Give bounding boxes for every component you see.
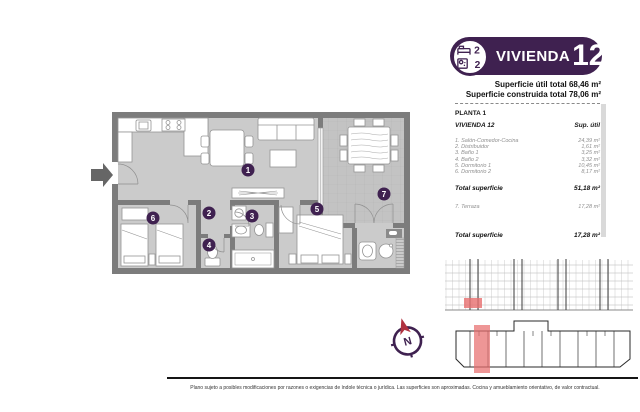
svg-text:1: 1: [246, 166, 251, 175]
unit-badge: 2 2 VIVIENDA 12: [450, 37, 602, 75]
building-elevation-locator: [443, 256, 637, 318]
room-marker-4: 4: [203, 239, 216, 252]
surface-totals: Superficie útil total 68,46 m² Superfici…: [400, 80, 601, 100]
svg-text:2: 2: [207, 209, 212, 218]
room-marker-5: 5: [311, 203, 324, 216]
rooms-count-icon: 2 2: [451, 38, 489, 76]
room-marker-7: 7: [378, 188, 391, 201]
svg-text:6: 6: [151, 214, 156, 223]
terrace-table: [340, 119, 398, 172]
table-unit-label: VIVIENDA 12: [455, 122, 495, 129]
unit-highlight-elevation: [464, 298, 482, 308]
areas-table: PLANTA 1 VIVIENDA 12 Sup. útil 1. Salón-…: [455, 103, 600, 239]
total-interior-row: Total superficie 51,18 m²: [455, 185, 600, 192]
washing-machine-icon: [232, 206, 246, 220]
floor-plan-drawing: 1 2 3 4 5 6 7: [90, 110, 412, 278]
room-marker-6: 6: [147, 212, 160, 225]
svg-text:3: 3: [250, 212, 255, 221]
coffee-table: [270, 150, 296, 167]
kitchen-stove-icon: [162, 119, 185, 131]
floor-label: PLANTA 1: [455, 110, 600, 117]
floor-plate-locator: [448, 317, 638, 375]
compass-north-label: N: [402, 335, 413, 349]
table-side-strip: [601, 104, 606, 237]
table-rows: 1. Salón-Comedor-Cocina24,39 m² 2. Distr…: [455, 138, 600, 175]
table-col-header: Sup. útil: [574, 122, 600, 129]
sofa: [258, 118, 314, 140]
unit-title: VIVIENDA: [496, 48, 570, 65]
svg-text:5: 5: [315, 205, 320, 214]
surface-built-total: Superficie construida total 78,06 m²: [400, 90, 601, 100]
unit-number: 12: [572, 41, 605, 71]
entrance-arrow-icon: [91, 163, 113, 187]
room-marker-2: 2: [203, 207, 216, 220]
total-terrace-row: Total superficie 17,28 m²: [455, 232, 600, 239]
table-row: 6. Dormitorio 28,17 m²: [455, 169, 600, 175]
footer-divider: [167, 377, 638, 379]
svg-text:7: 7: [382, 190, 387, 199]
terrace-row: 7. Terraza 17,28 m²: [455, 204, 600, 210]
floorplan-sheet: 1 2 3 4 5 6 7 2 2: [0, 0, 640, 412]
disclaimer-text: Plano sujeto a posibles modificaciones p…: [150, 385, 640, 391]
room-marker-1: 1: [242, 164, 255, 177]
room-marker-3: 3: [246, 210, 259, 223]
svg-text:4: 4: [207, 241, 212, 250]
bedroom-count: 2: [474, 46, 480, 57]
sliding-window: [318, 128, 323, 206]
tv-unit: [232, 188, 284, 198]
surface-util-total: Superficie útil total 68,46 m²: [400, 80, 601, 90]
unit-highlight-plate: [474, 325, 490, 373]
bathroom-count: 2: [475, 60, 481, 71]
stairs-hatch: [396, 238, 404, 268]
compass: N: [382, 311, 432, 365]
